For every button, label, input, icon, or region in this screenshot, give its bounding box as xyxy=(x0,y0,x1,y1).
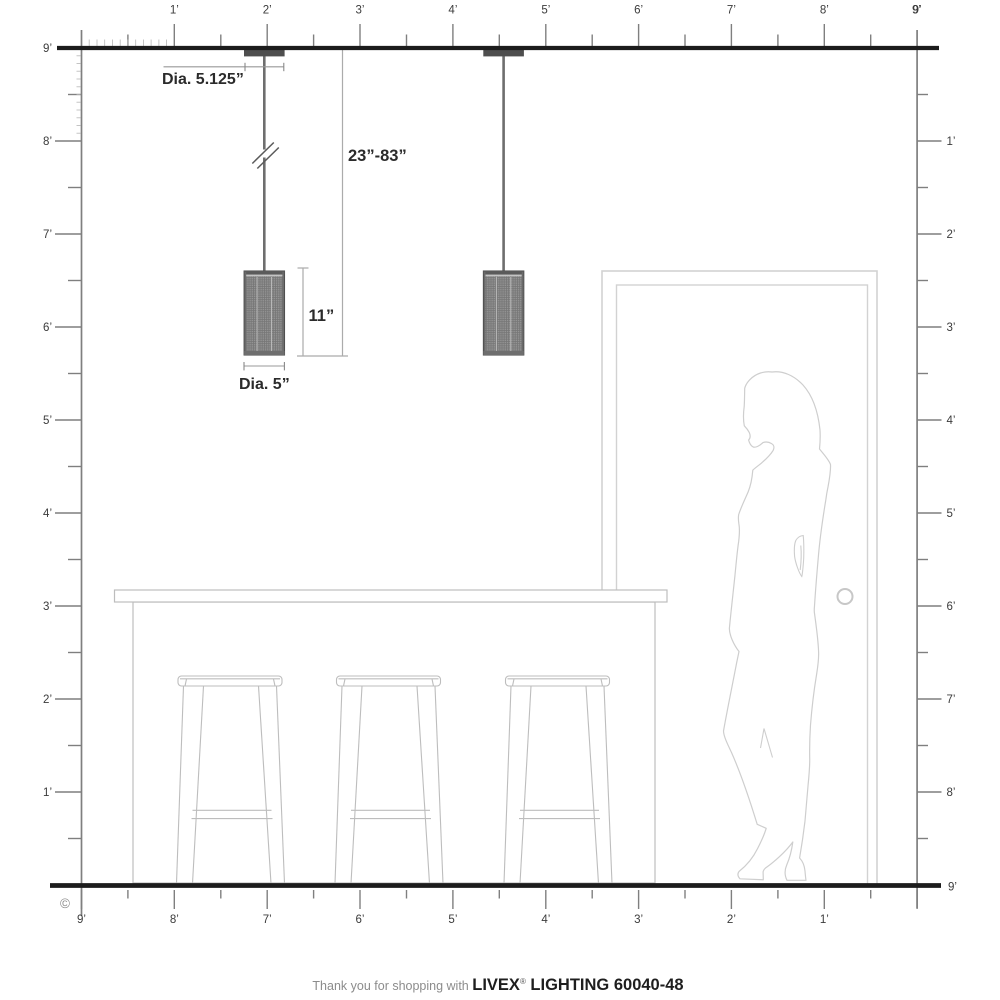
svg-text:4’: 4’ xyxy=(947,415,956,427)
svg-text:Dia. 5”: Dia. 5” xyxy=(239,376,290,393)
svg-text:9’: 9’ xyxy=(948,882,957,894)
svg-text:7’: 7’ xyxy=(263,914,272,926)
svg-text:8’: 8’ xyxy=(820,5,829,17)
svg-text:5’: 5’ xyxy=(947,508,956,520)
svg-text:2’: 2’ xyxy=(947,229,956,241)
svg-text:2’: 2’ xyxy=(727,914,736,926)
svg-text:6’: 6’ xyxy=(947,601,956,613)
svg-text:5’: 5’ xyxy=(448,914,457,926)
svg-text:4’: 4’ xyxy=(448,5,457,17)
svg-text:9’: 9’ xyxy=(77,914,86,926)
svg-text:11”: 11” xyxy=(309,307,335,325)
svg-text:7’: 7’ xyxy=(727,5,736,17)
svg-text:1’: 1’ xyxy=(43,787,52,799)
svg-text:Thank you for shopping with LI: Thank you for shopping with LIVEX® LIGHT… xyxy=(312,976,683,994)
svg-text:3’: 3’ xyxy=(634,914,643,926)
svg-text:7’: 7’ xyxy=(43,229,52,241)
svg-text:1’: 1’ xyxy=(820,914,829,926)
svg-text:8’: 8’ xyxy=(43,136,52,148)
svg-text:9’: 9’ xyxy=(43,43,52,55)
svg-text:6’: 6’ xyxy=(356,914,365,926)
svg-text:8’: 8’ xyxy=(170,914,179,926)
svg-text:9’: 9’ xyxy=(912,5,921,17)
svg-text:3’: 3’ xyxy=(356,5,365,17)
svg-text:Dia. 5.125”: Dia. 5.125” xyxy=(162,71,244,88)
svg-text:6’: 6’ xyxy=(634,5,643,17)
svg-text:3’: 3’ xyxy=(43,601,52,613)
svg-text:6’: 6’ xyxy=(43,322,52,334)
svg-text:5’: 5’ xyxy=(541,5,550,17)
svg-text:2’: 2’ xyxy=(263,5,272,17)
svg-text:4’: 4’ xyxy=(541,914,550,926)
svg-text:©: © xyxy=(60,896,70,911)
svg-text:4’: 4’ xyxy=(43,508,52,520)
svg-text:7’: 7’ xyxy=(947,694,956,706)
svg-text:3’: 3’ xyxy=(947,322,956,334)
svg-text:23”-83”: 23”-83” xyxy=(348,147,407,165)
svg-text:1’: 1’ xyxy=(170,5,179,17)
svg-text:2’: 2’ xyxy=(43,694,52,706)
svg-text:8’: 8’ xyxy=(947,787,956,799)
svg-text:1’: 1’ xyxy=(947,136,956,148)
svg-text:5’: 5’ xyxy=(43,415,52,427)
